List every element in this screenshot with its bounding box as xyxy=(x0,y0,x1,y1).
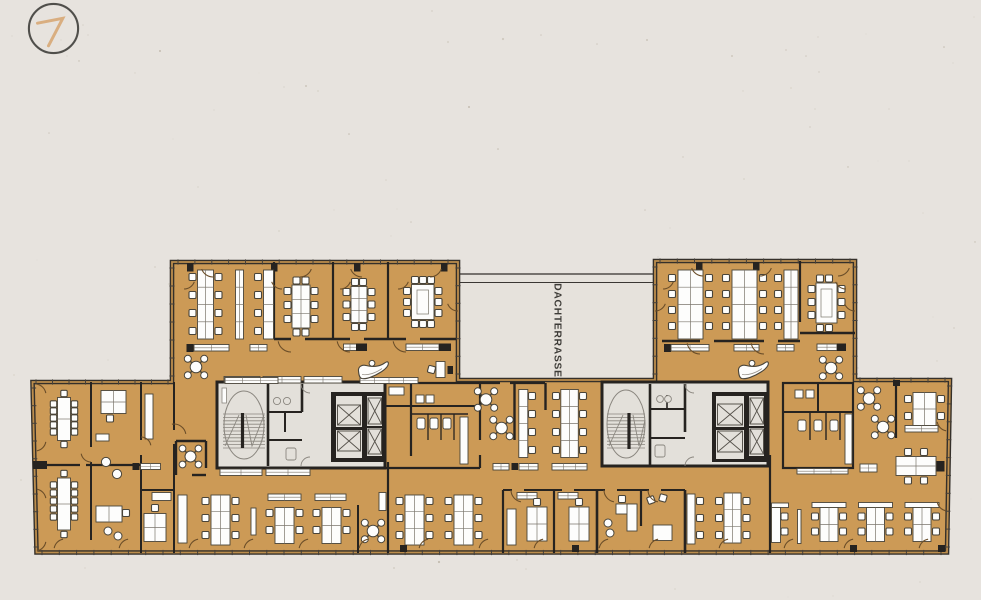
svg-text:DACHTERRASSE: DACHTERRASSE xyxy=(552,283,563,378)
